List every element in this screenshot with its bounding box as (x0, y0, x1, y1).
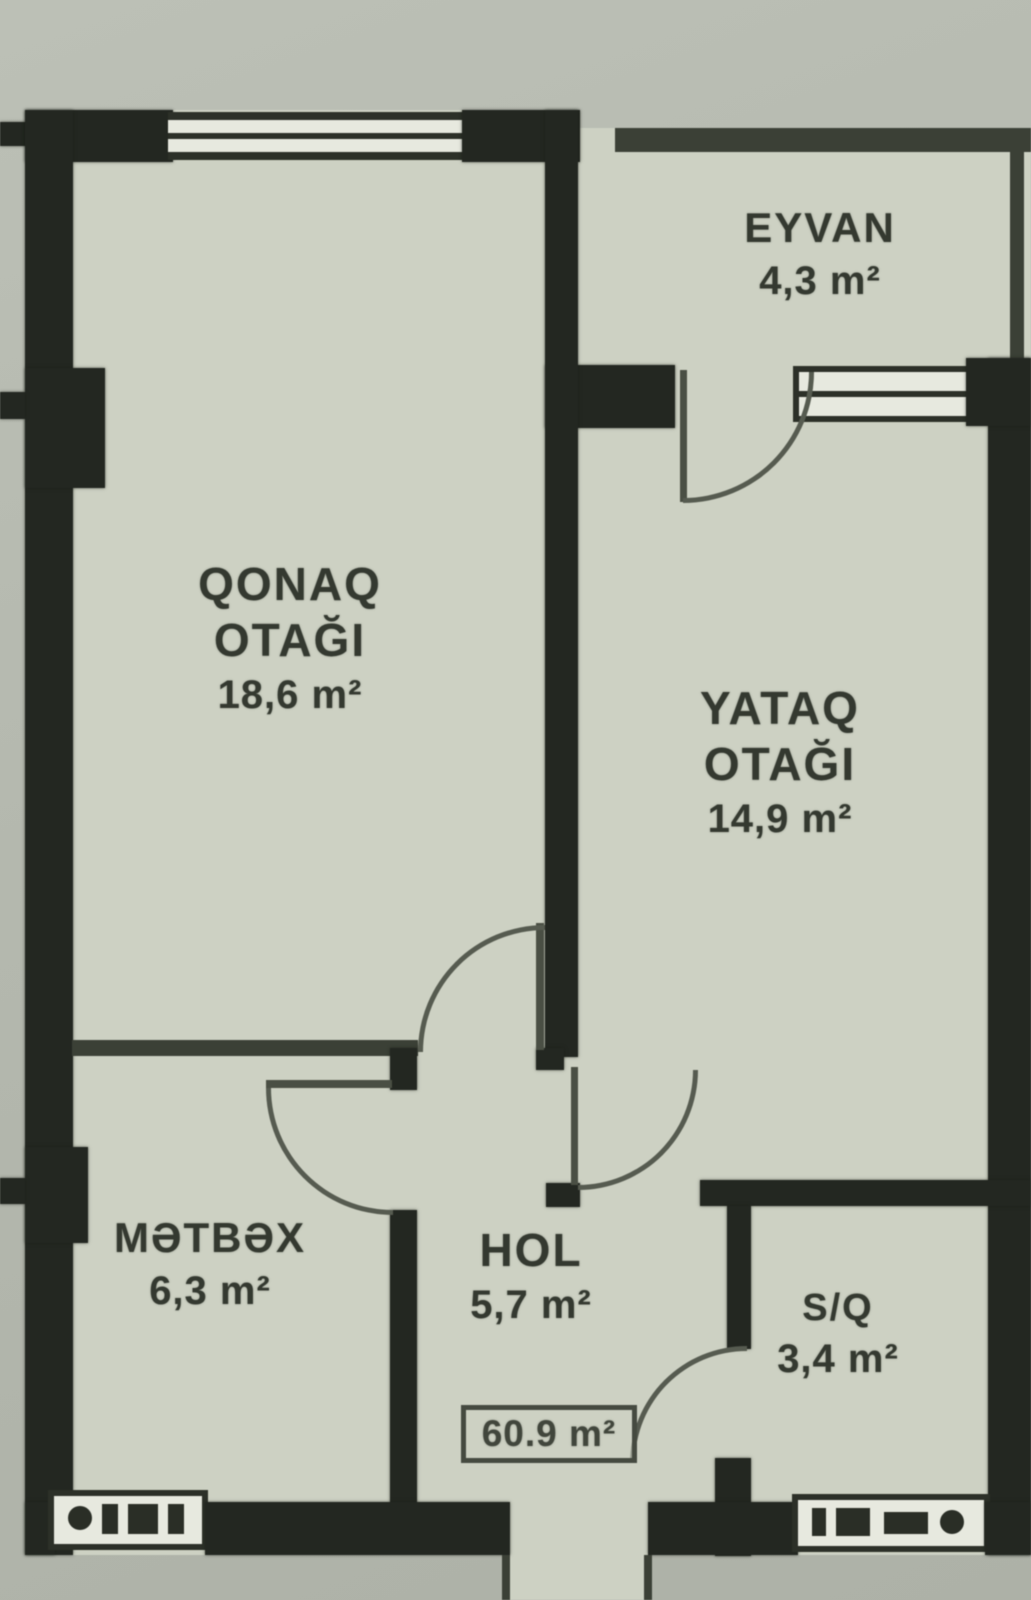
wall-left (25, 110, 73, 1555)
room-name: YATAQ (598, 680, 962, 736)
fixture-icon (884, 1512, 928, 1534)
wall-balcony-pier-right (966, 358, 1031, 426)
room-name: OTAĞI (108, 612, 472, 668)
room-label-qonaq: QONAQ OTAĞI 18,6 m² (108, 556, 472, 722)
bedroom-door-leaf (571, 1067, 578, 1185)
room-name: S/Q (738, 1284, 938, 1332)
room-name: MƏTBƏX (55, 1212, 365, 1264)
balcony-window (793, 366, 973, 422)
room-area: 14,9 m² (598, 792, 962, 846)
room-area: 4,3 m² (640, 254, 1000, 308)
window-glass-line (799, 391, 967, 397)
room-area: 18,6 m² (108, 668, 472, 722)
wall-living-bedroom-divider (545, 110, 578, 1057)
floor-plan-canvas: EYVAN 4,3 m² QONAQ OTAĞI 18,6 m² YATAQ O… (0, 0, 1031, 1600)
room-name: HOL (408, 1222, 654, 1278)
fixture-icon (168, 1504, 184, 1534)
bathroom-window (792, 1494, 990, 1552)
room-label-yataq: YATAQ OTAĞI 14,9 m² (598, 680, 962, 846)
floor-entry-corridor (505, 1550, 650, 1600)
floor-plan: EYVAN 4,3 m² QONAQ OTAĞI 18,6 m² YATAQ O… (0, 0, 1031, 1600)
kitchen-window (48, 1490, 208, 1550)
corridor-edge-right (644, 1555, 652, 1600)
wall-eyvan-top (615, 128, 1031, 152)
fixture-icon (836, 1508, 870, 1536)
wall-bottom-d (985, 1502, 1031, 1555)
room-name: OTAĞI (598, 736, 962, 792)
window-glass-line (168, 133, 466, 139)
fixture-icon (812, 1508, 826, 1536)
wall-eyvan-right-edge (1010, 150, 1024, 368)
total-area-value: 60.9 m² (482, 1413, 617, 1455)
room-name: QONAQ (108, 556, 472, 612)
wall-left-stub-kitchen (0, 1178, 25, 1204)
total-area-badge: 60.9 m² (461, 1405, 637, 1463)
wall-bottom-b (205, 1502, 510, 1555)
wall-left-stub-top (0, 392, 25, 419)
room-label-hol: HOL 5,7 m² (408, 1222, 654, 1332)
wall-sq-top (700, 1180, 1031, 1206)
room-label-eyvan: EYVAN 4,3 m² (640, 202, 1000, 308)
corridor-edge-left (502, 1555, 510, 1600)
room-label-sq: S/Q 3,4 m² (738, 1284, 938, 1386)
fixture-icon (68, 1506, 92, 1530)
room-area: 5,7 m² (408, 1278, 654, 1332)
room-name: EYVAN (640, 202, 1000, 254)
living-room-window (168, 112, 466, 160)
wall-right (988, 358, 1031, 1555)
kitchen-door-leaf (266, 1080, 392, 1088)
wall-top-stub-left (0, 122, 27, 146)
fixture-icon (128, 1504, 158, 1534)
wall-living-bottom (72, 1040, 418, 1056)
wall-kitchen-hall-a (390, 1048, 417, 1090)
wall-bottom-c (648, 1502, 798, 1555)
floor-left-wing (25, 110, 580, 1555)
room-area: 6,3 m² (55, 1264, 365, 1318)
room-area: 3,4 m² (738, 1332, 938, 1386)
fixture-icon (102, 1504, 118, 1534)
room-label-metbex: MƏTBƏX 6,3 m² (55, 1212, 365, 1318)
wall-bedroom-west-stub (546, 1183, 580, 1207)
wall-left-pier-top (25, 368, 105, 488)
fixture-icon (940, 1510, 964, 1534)
